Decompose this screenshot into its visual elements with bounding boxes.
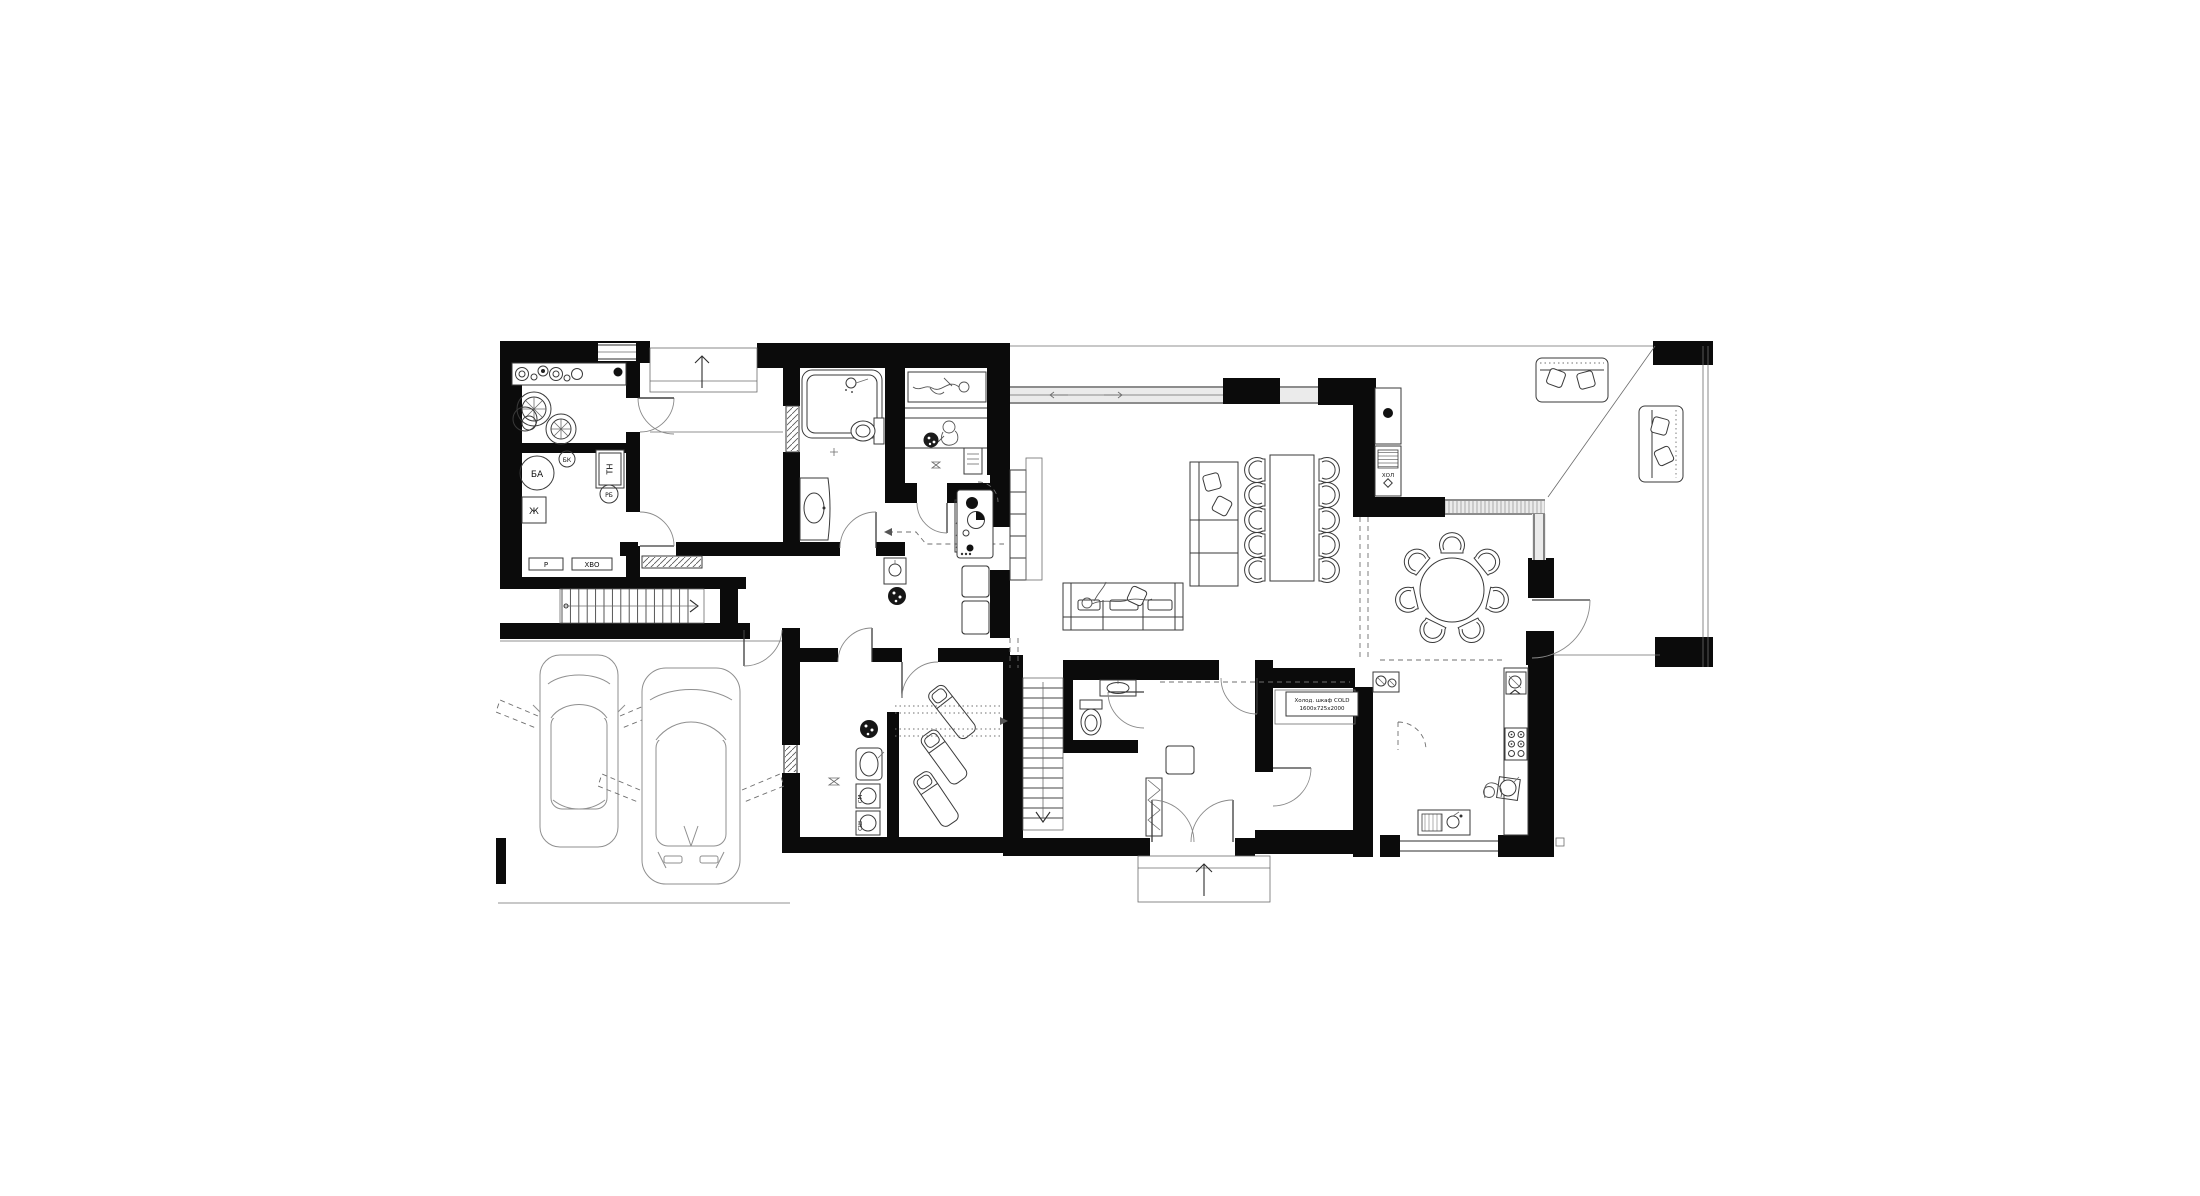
car-icon <box>496 655 662 847</box>
door-swing <box>1108 692 1144 728</box>
doormat-icon <box>962 566 989 597</box>
floor-plan-page: БА БК ТН РБ Ж Р ХВО <box>0 0 2200 1196</box>
vanity-sink-icon <box>800 478 830 540</box>
svg-text:ХВО: ХВО <box>584 561 600 569</box>
wc-sink-icon <box>1100 680 1136 696</box>
svg-text:1600х725х2000: 1600х725х2000 <box>1299 706 1345 712</box>
small-sink-icon <box>884 558 906 584</box>
dining-table-icon <box>1245 455 1340 583</box>
door-swing <box>640 398 674 432</box>
svg-text:БК: БК <box>563 457 572 464</box>
window-carport-wall <box>782 745 800 773</box>
door-swing <box>840 512 876 548</box>
entry-porch <box>1138 856 1270 902</box>
technical-room: БА БК ТН РБ Ж Р ХВО <box>512 363 626 570</box>
floor-plan-drawing: БА БК ТН РБ Ж Р ХВО <box>0 0 2200 1196</box>
living-room <box>1010 455 1368 657</box>
round-table-nook <box>1393 533 1511 647</box>
outdoor-sofa-icon <box>1536 358 1608 402</box>
fireplace-bar-icon <box>957 490 993 558</box>
person-sitting-icon <box>938 421 958 445</box>
relax-room: СМ СШ <box>829 683 1008 835</box>
svg-text:СМ: СМ <box>858 794 864 803</box>
door-swing <box>838 628 872 662</box>
svg-text:Холод. шкаф COLD: Холод. шкаф COLD <box>1295 698 1350 704</box>
dryer-icon: СШ <box>856 811 880 835</box>
svg-text:ТН: ТН <box>606 464 615 476</box>
meter-box-icon: Ж <box>522 497 546 523</box>
sofa-icon <box>1063 582 1183 630</box>
chaise-sofa-icon <box>1190 462 1238 586</box>
svg-text:БА: БА <box>531 470 544 480</box>
heat-pump-unit-icon: ТН <box>596 450 624 488</box>
cooktop-icon <box>1505 728 1527 760</box>
kettle-icons <box>1373 672 1399 692</box>
pump-box-icon: Р <box>529 558 563 570</box>
small-boiler-icon: БК <box>559 451 575 467</box>
window-kitchen <box>1400 839 1498 853</box>
door-swing-double <box>1152 800 1233 842</box>
stairs-exterior <box>560 589 704 623</box>
radiator-niche-hall <box>786 406 799 452</box>
manifold-icon <box>512 363 626 385</box>
cold-cabinet-label: Холод. шкаф COLD 1600х725х2000 <box>1286 692 1358 716</box>
sauna <box>905 372 987 474</box>
plant-icon <box>888 587 906 605</box>
bathroom <box>800 370 884 540</box>
tall-cabinet-icon: ХОЛ <box>1375 388 1401 496</box>
vanity-sink-icon <box>856 748 884 780</box>
stairs-down <box>1023 678 1063 830</box>
carport <box>496 641 790 903</box>
doormat-icon <box>1166 746 1194 774</box>
floor-drain-icon <box>829 778 839 785</box>
car-icon <box>598 668 784 884</box>
door-swing <box>1273 768 1311 806</box>
radiator-icon <box>642 556 702 568</box>
glass-wall-living <box>1010 386 1223 404</box>
sauna-bucket-icon <box>924 433 939 448</box>
wardrobe-icon <box>1146 778 1162 836</box>
sauna-heater-icon <box>964 448 982 474</box>
door-swing <box>917 503 947 533</box>
floor-drain-icon <box>932 462 940 468</box>
water-treatment-box-icon: ХВО <box>572 558 612 570</box>
person-at-sink-icon <box>1484 783 1502 798</box>
buffer-tank-icon: БА <box>520 456 554 490</box>
door-swing <box>640 512 674 546</box>
washer-icon: СМ <box>856 784 880 808</box>
glass-wall-living-2 <box>1280 386 1318 404</box>
svg-text:Ж: Ж <box>529 507 539 517</box>
plant-icon <box>860 720 878 738</box>
toilet-icon <box>1080 700 1102 735</box>
shelf-unit-icon <box>1010 458 1042 580</box>
laundry-corner: СМ СШ <box>829 720 884 835</box>
entry-porch-top <box>650 348 757 392</box>
outdoor-sofa-icon <box>1639 406 1683 482</box>
door-swing <box>1221 678 1257 714</box>
window-technical <box>598 343 636 361</box>
svg-text:Р: Р <box>544 561 548 569</box>
svg-text:СШ: СШ <box>858 821 864 831</box>
wc <box>1080 680 1136 735</box>
svg-text:РБ: РБ <box>605 492 613 499</box>
sauna-bench-icon <box>905 372 987 448</box>
heat-pump-fan-icon <box>546 414 576 444</box>
sink-unit-icon <box>1418 810 1470 835</box>
doormat-icon <box>962 601 989 634</box>
